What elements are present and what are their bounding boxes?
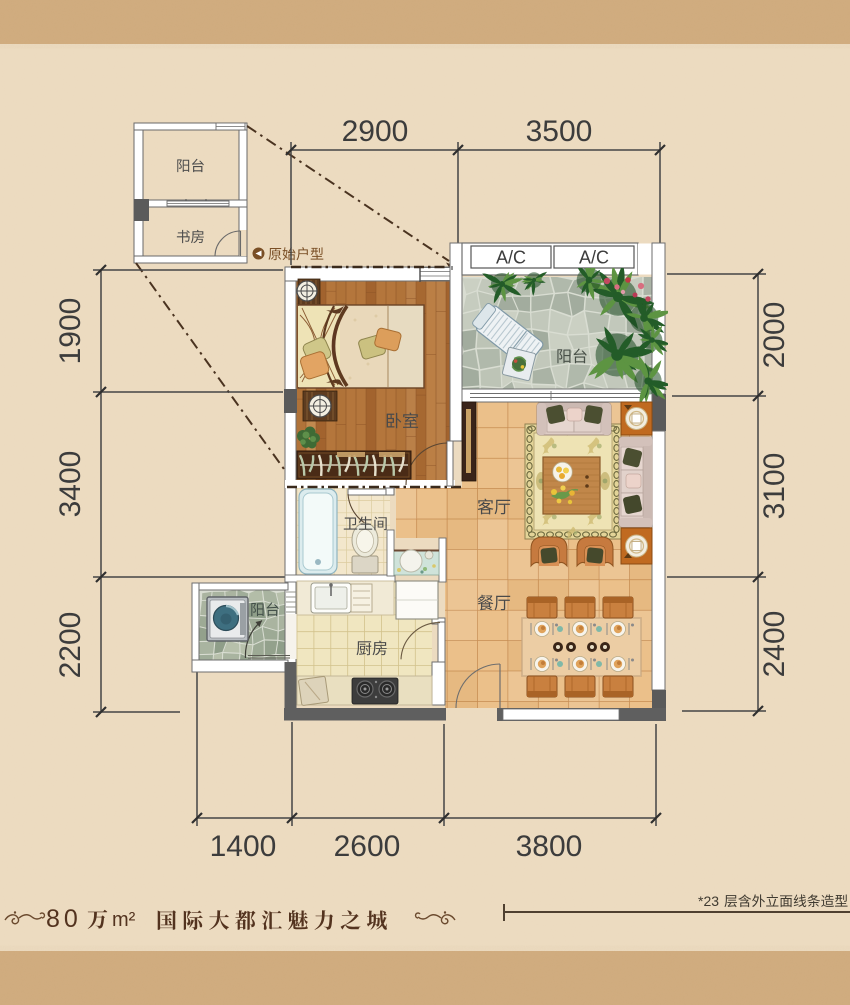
svg-text:A/C: A/C — [496, 248, 526, 268]
svg-text:2000: 2000 — [758, 302, 791, 369]
svg-text:3800: 3800 — [516, 830, 583, 863]
svg-text:3500: 3500 — [526, 115, 593, 148]
svg-text:2600: 2600 — [334, 830, 401, 863]
svg-text:*23: *23 — [698, 893, 719, 909]
svg-text:1900: 1900 — [54, 298, 87, 365]
svg-text:A/C: A/C — [579, 248, 609, 268]
svg-text:2400: 2400 — [758, 611, 791, 678]
svg-text:1400: 1400 — [210, 830, 277, 863]
svg-text:3400: 3400 — [54, 451, 87, 518]
svg-text:2900: 2900 — [342, 115, 409, 148]
svg-text:2200: 2200 — [54, 612, 87, 679]
svg-text:3100: 3100 — [758, 453, 791, 520]
svg-text:80: 80 — [46, 905, 82, 933]
svg-text:m²: m² — [112, 909, 136, 931]
